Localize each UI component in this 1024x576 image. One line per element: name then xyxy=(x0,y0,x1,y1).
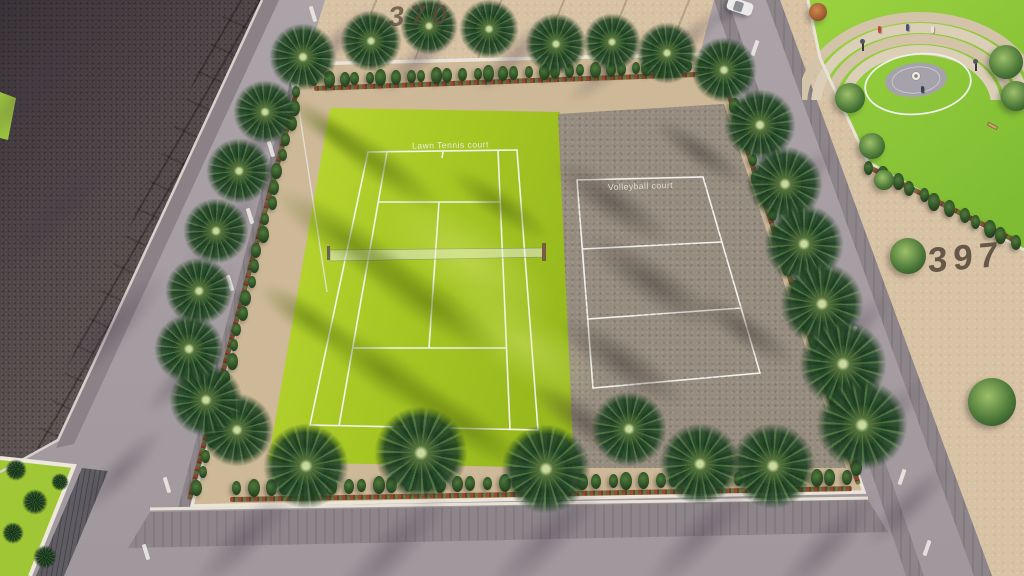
cast-shadow xyxy=(0,134,135,287)
hedge-bush xyxy=(458,68,467,82)
hedge-bush xyxy=(928,193,940,211)
hedge-bush xyxy=(251,243,261,258)
lane-dash xyxy=(923,540,932,556)
hedge-bush xyxy=(509,66,518,80)
hedge-bush xyxy=(250,259,259,273)
park-bench xyxy=(987,122,999,131)
hedge-bush xyxy=(944,200,955,217)
hedge-bush xyxy=(609,474,618,488)
hedge-bush xyxy=(268,196,277,210)
hedge-bush xyxy=(238,306,248,321)
cast-shadow xyxy=(251,272,369,367)
hedge-bush xyxy=(230,339,238,351)
hedge-bush xyxy=(864,161,873,175)
cast-shadow xyxy=(67,418,173,527)
hedge-bush xyxy=(842,470,852,485)
lawn-plant xyxy=(0,518,28,547)
lawn-plant xyxy=(5,459,27,481)
tree xyxy=(968,378,1016,426)
tree xyxy=(989,45,1023,79)
hedge-bush xyxy=(232,481,241,495)
hedge-bush xyxy=(960,208,970,223)
hedge-bush xyxy=(248,479,260,497)
hedge-bush xyxy=(591,474,601,489)
hedge-bush xyxy=(971,215,980,229)
lamp-post xyxy=(975,62,977,71)
hedge-bush xyxy=(620,472,632,490)
hedge-bush xyxy=(199,466,207,478)
hedge-bush xyxy=(366,72,374,84)
tree xyxy=(859,133,885,159)
lane-dash xyxy=(309,6,318,22)
hedge-bush xyxy=(417,70,425,82)
hedge-bush xyxy=(525,66,533,78)
hedge-bush xyxy=(483,477,492,491)
lane-dash xyxy=(898,468,907,484)
hedge-bush xyxy=(391,70,401,85)
hedge-bush xyxy=(227,353,238,370)
cast-shadow xyxy=(0,22,96,158)
hedge-bush xyxy=(638,472,649,489)
tree xyxy=(1001,81,1024,111)
tree xyxy=(809,3,827,21)
hedge-bush xyxy=(340,72,350,87)
hedge-bush xyxy=(474,68,482,80)
site-plan-render: Lawn Tennis court Volleyball court 370 3… xyxy=(0,0,1024,576)
hedge-bush xyxy=(442,68,452,83)
hedge-bush xyxy=(258,226,269,243)
hedge-bush xyxy=(191,480,202,497)
car-windshield xyxy=(733,0,745,12)
lawn-plant xyxy=(47,469,72,494)
scenery-layer xyxy=(0,0,1024,576)
person-figure xyxy=(906,24,909,31)
tree xyxy=(874,170,894,190)
hedge-bush xyxy=(465,476,475,491)
hedge-bush xyxy=(279,149,287,161)
person-figure xyxy=(878,26,881,33)
hedge-bush xyxy=(248,276,256,288)
hedge-bush xyxy=(920,188,929,202)
lawn-plant xyxy=(28,540,62,574)
hedge-bush xyxy=(232,323,241,337)
tree xyxy=(835,83,865,113)
hedge-bush xyxy=(240,290,251,307)
hedge-bush xyxy=(893,173,904,190)
lawn-plant xyxy=(19,486,50,517)
hedge-bush xyxy=(350,72,359,86)
hedge-bush xyxy=(824,469,835,486)
hedge-bush xyxy=(261,213,269,225)
hedge-bush xyxy=(483,65,494,82)
person-figure xyxy=(921,86,924,93)
hedge-bush xyxy=(357,479,366,493)
plot-370-number: 370 xyxy=(354,0,487,34)
lane-dash xyxy=(142,544,151,560)
hedge-bush xyxy=(407,70,416,84)
palm-tree xyxy=(269,23,337,91)
hedge-bush xyxy=(904,181,914,196)
lane-dash xyxy=(163,477,172,493)
person-figure xyxy=(931,26,934,33)
lamp-post xyxy=(862,42,864,51)
